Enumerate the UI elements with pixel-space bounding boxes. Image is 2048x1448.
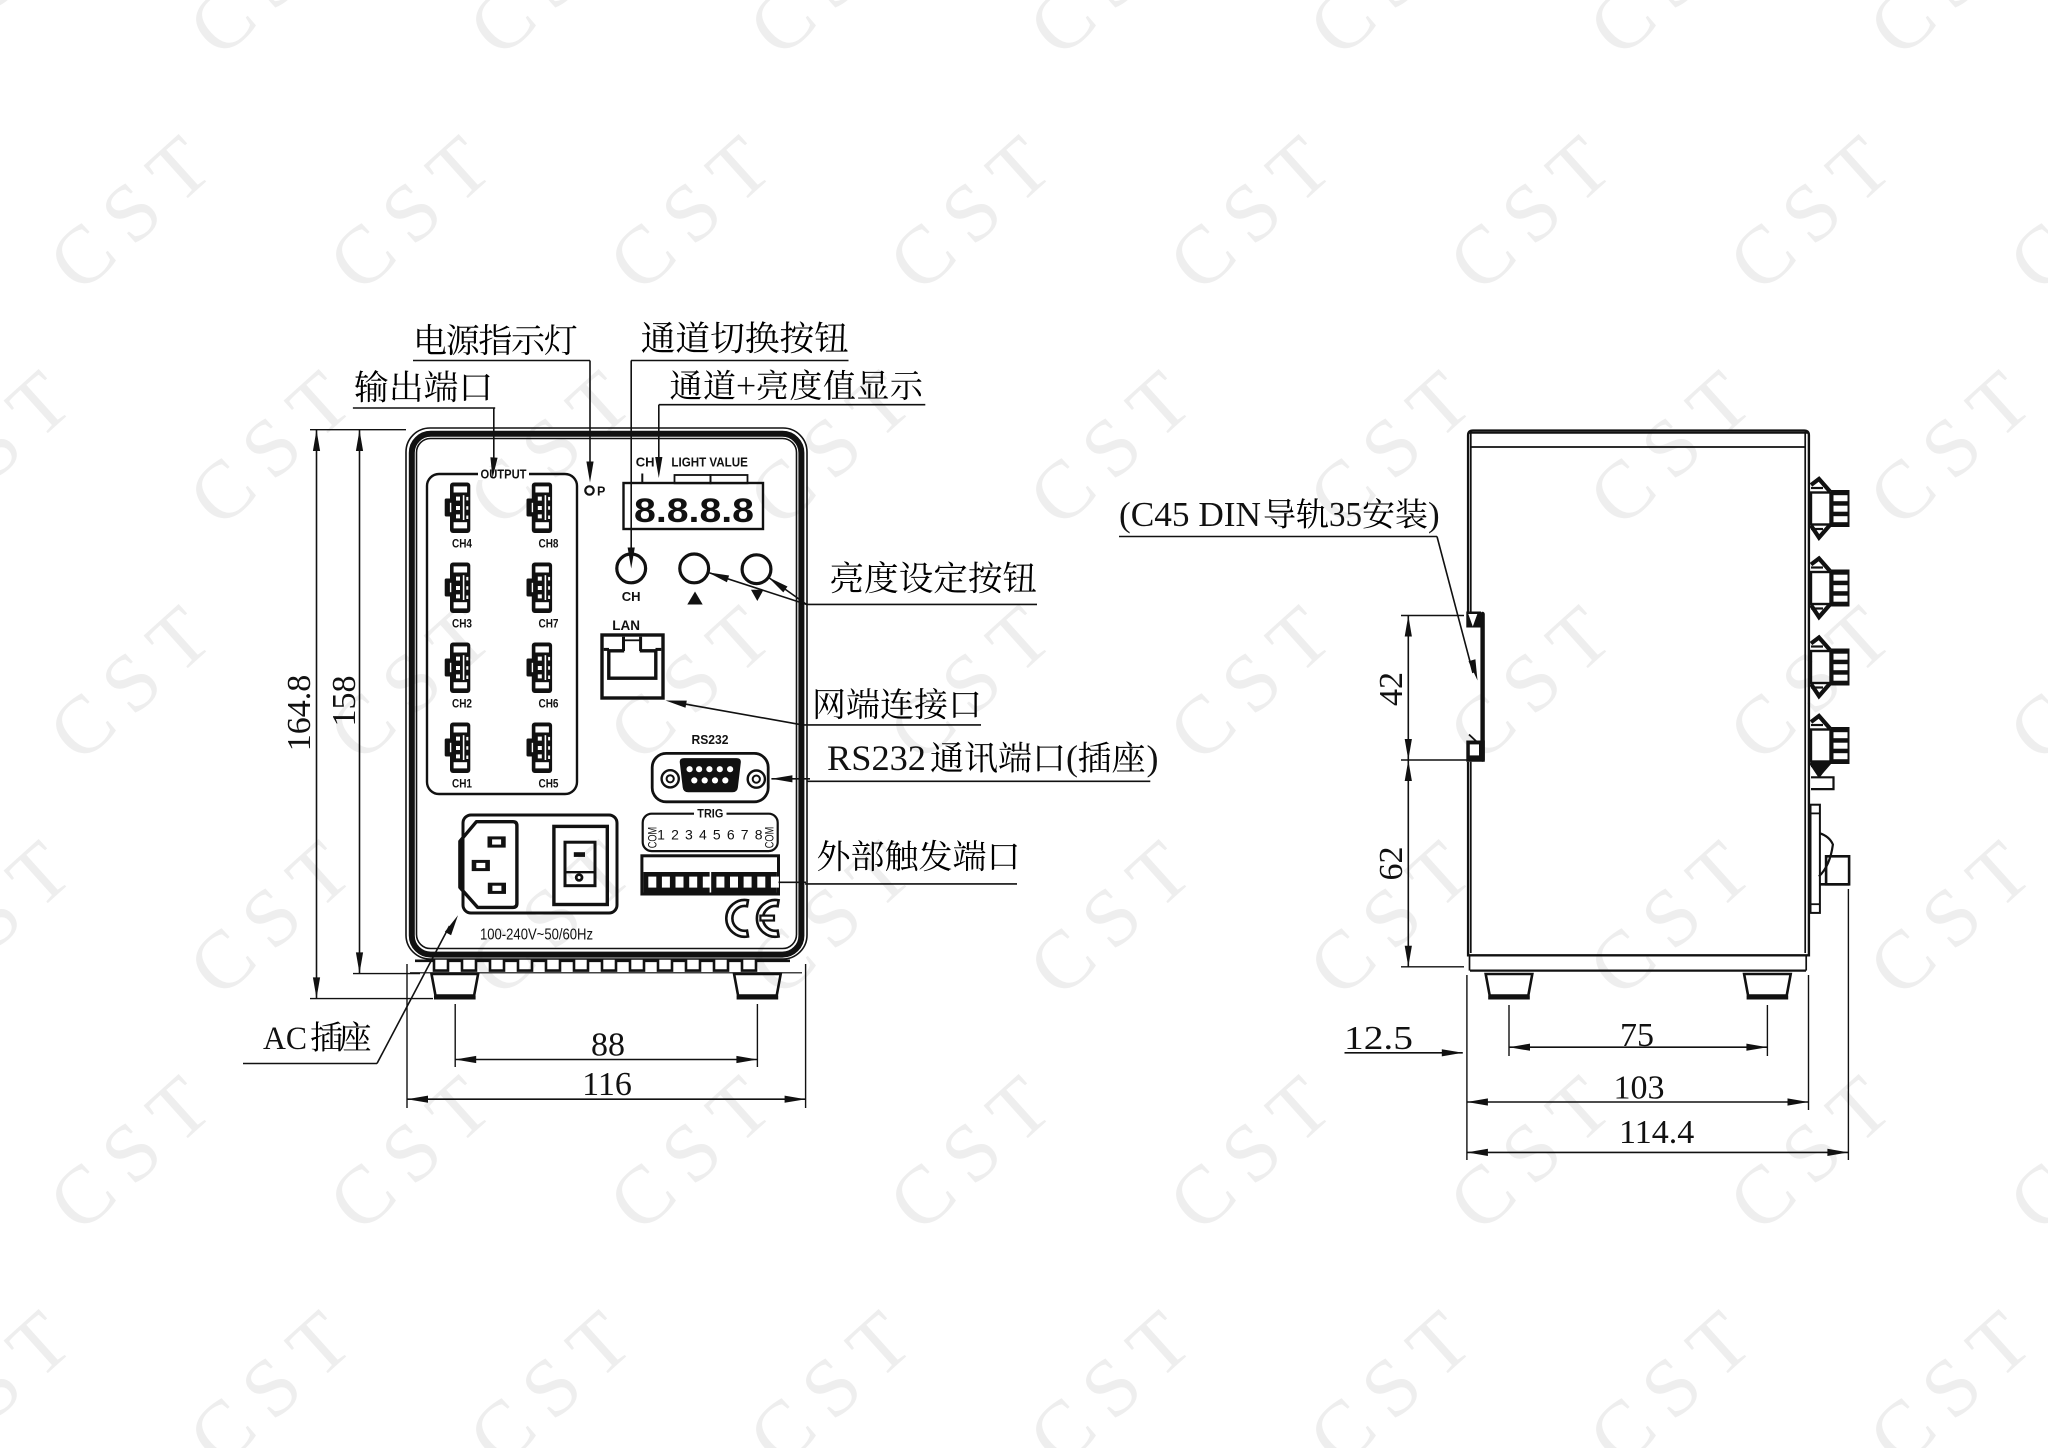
svg-text:114.4: 114.4: [1619, 1114, 1694, 1151]
svg-text:LAN: LAN: [612, 618, 640, 633]
svg-text:(C45 DIN: (C45 DIN: [1119, 495, 1261, 534]
svg-text:CH6: CH6: [539, 697, 559, 711]
svg-text:LIGHT VALUE: LIGHT VALUE: [671, 455, 748, 470]
svg-text:CH3: CH3: [452, 617, 472, 631]
svg-text:103: 103: [1614, 1070, 1665, 1107]
svg-text:164.8: 164.8: [281, 675, 318, 752]
svg-text:35: 35: [1329, 495, 1362, 534]
svg-text:CH1: CH1: [452, 777, 472, 791]
svg-text:75: 75: [1620, 1017, 1654, 1054]
svg-text:(: (: [1066, 738, 1078, 778]
svg-text:CH2: CH2: [452, 697, 472, 711]
svg-text:RS232: RS232: [827, 738, 926, 778]
svg-text:P: P: [597, 485, 605, 499]
svg-text:CH: CH: [622, 589, 641, 604]
svg-text:AC: AC: [263, 1021, 307, 1057]
svg-text:12.5: 12.5: [1344, 1020, 1413, 1057]
svg-text:): ): [1428, 495, 1440, 534]
svg-text:8.8.8.8: 8.8.8.8: [634, 492, 754, 530]
svg-text:158: 158: [326, 676, 363, 727]
svg-text:CH7: CH7: [539, 617, 559, 631]
svg-text:CH4: CH4: [452, 537, 472, 551]
svg-text:COM: COM: [764, 827, 776, 849]
svg-text:42: 42: [1373, 672, 1410, 706]
svg-text:CH5: CH5: [539, 777, 559, 791]
svg-text:RS232: RS232: [692, 732, 729, 747]
svg-text:CH8: CH8: [539, 537, 559, 551]
svg-text:62: 62: [1373, 847, 1410, 881]
svg-text:88: 88: [591, 1027, 625, 1064]
svg-text:TRIG: TRIG: [697, 809, 723, 821]
svg-text:): ): [1147, 738, 1159, 778]
svg-text:OUTPUT: OUTPUT: [481, 468, 527, 482]
svg-text:116: 116: [582, 1066, 632, 1103]
svg-text:CH: CH: [636, 455, 655, 470]
svg-text:100-240V~50/60Hz: 100-240V~50/60Hz: [480, 927, 593, 944]
